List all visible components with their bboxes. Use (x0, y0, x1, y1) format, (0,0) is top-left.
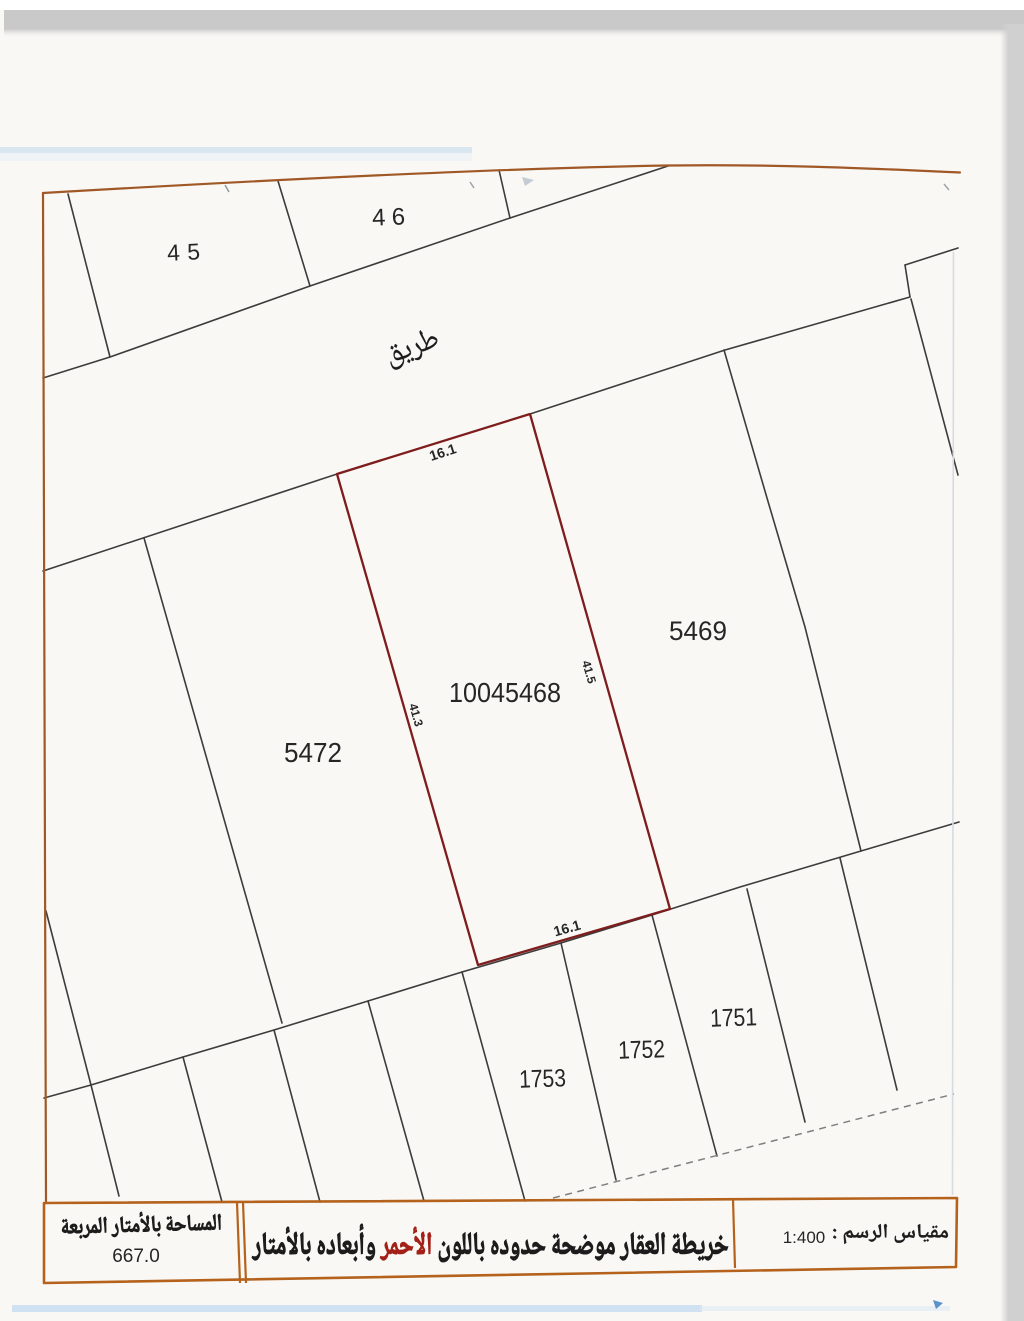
svg-text:10045468: 10045468 (449, 677, 561, 708)
svg-text:5472: 5472 (284, 737, 342, 768)
svg-text:1752: 1752 (618, 1035, 666, 1065)
svg-text:667.0: 667.0 (112, 1246, 160, 1267)
svg-text:1751: 1751 (710, 1003, 758, 1033)
svg-text:1753: 1753 (519, 1064, 567, 1094)
svg-text:1:400: 1:400 (783, 1228, 826, 1247)
svg-text:5469: 5469 (669, 616, 727, 646)
